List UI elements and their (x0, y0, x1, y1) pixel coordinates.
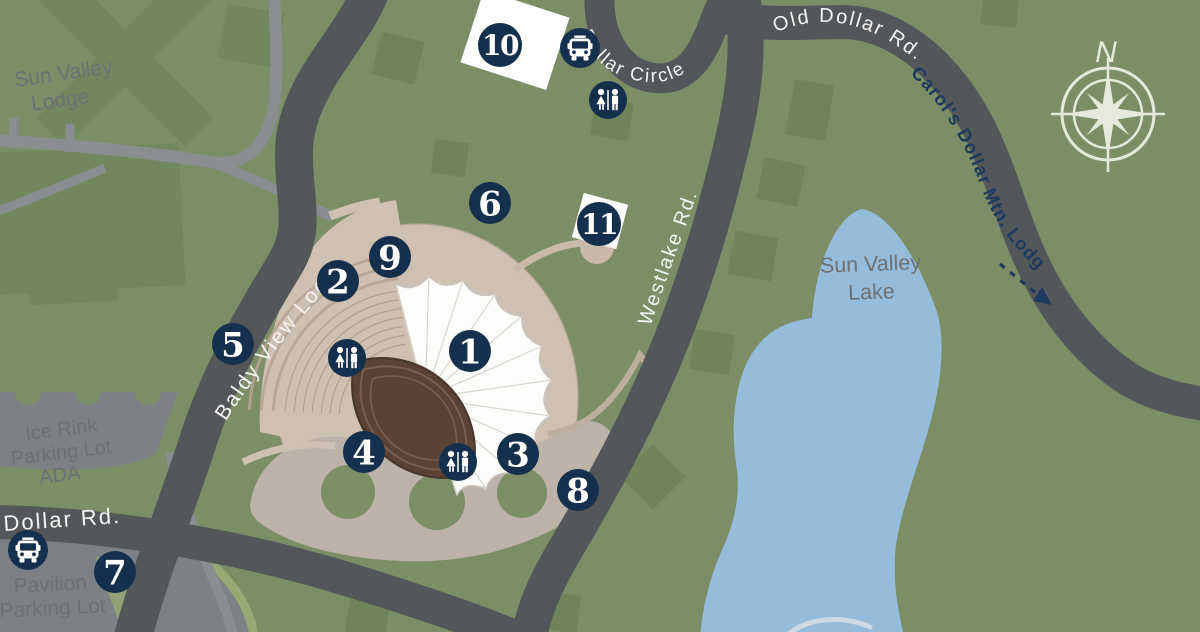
restroom-icon-north (589, 81, 627, 119)
bus-icon-dollar-rd (8, 530, 48, 570)
svg-text:3: 3 (506, 436, 530, 476)
svg-text:2: 2 (326, 263, 350, 303)
svg-text:1: 1 (458, 333, 482, 373)
svg-text:9: 9 (378, 239, 402, 279)
marker-11: 11 (577, 202, 621, 246)
svg-text:8: 8 (566, 472, 590, 512)
svg-text:Pavilion: Pavilion (13, 571, 88, 598)
restroom-icon-west (328, 339, 366, 377)
svg-text:4: 4 (352, 434, 376, 474)
bus-icon-dollar-circle (560, 28, 600, 68)
restroom-icon-south (439, 443, 477, 481)
compass-north-label: N (1095, 36, 1117, 69)
marker-10: 10 (478, 23, 522, 67)
svg-text:11: 11 (581, 208, 617, 241)
svg-text:6: 6 (478, 185, 502, 225)
svg-text:Sun Valley: Sun Valley (819, 250, 921, 278)
svg-text:7: 7 (103, 554, 127, 594)
svg-text:Lake: Lake (848, 279, 895, 305)
svg-text:5: 5 (221, 326, 245, 366)
svg-text:10: 10 (482, 29, 519, 62)
venue-map: Baldy View Loop Westlake Rd. Dollar Circ… (0, 0, 1200, 632)
